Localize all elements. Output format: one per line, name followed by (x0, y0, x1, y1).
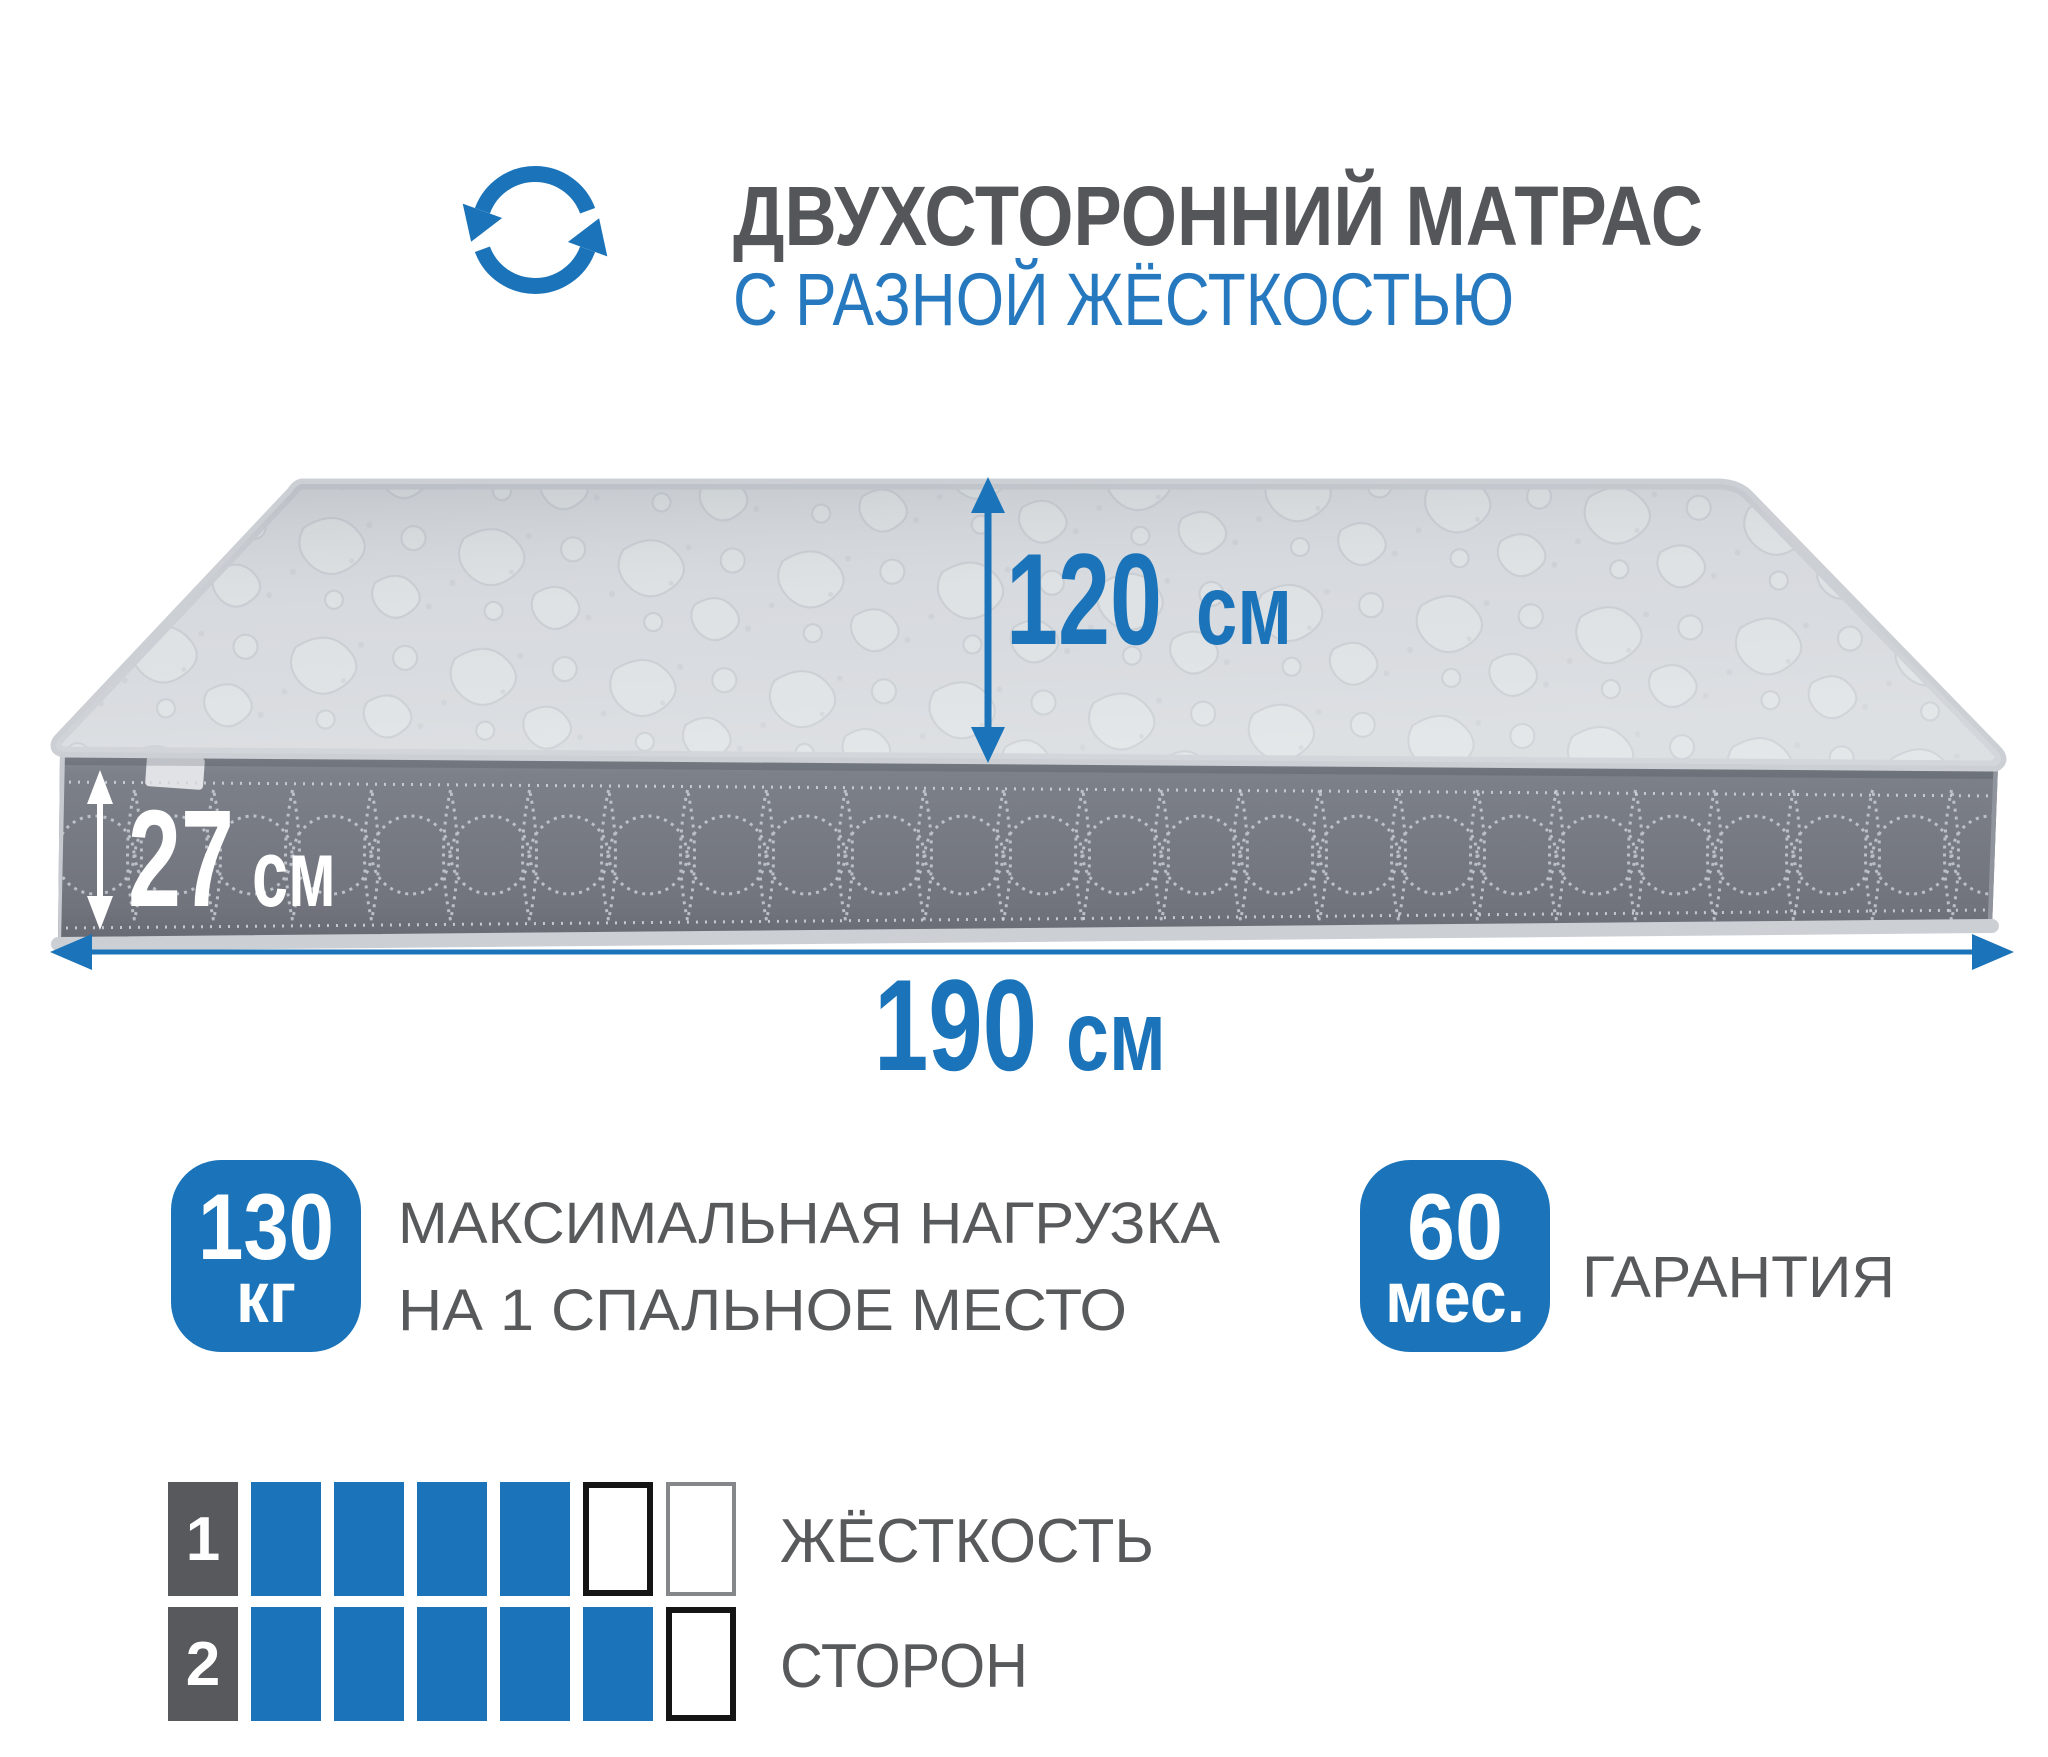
firmness-cell-filled (334, 1607, 404, 1721)
max-load-label-line1: МАКСИМАЛЬНАЯ НАГРУЗКА (398, 1191, 1220, 1256)
warranty-badge: 60 мес. (1360, 1160, 1550, 1352)
firmness-cell-filled (500, 1482, 570, 1596)
warranty-unit: мес. (1385, 1258, 1525, 1338)
firmness-cell-filled (251, 1607, 321, 1721)
depth-value: 120 (1006, 526, 1162, 672)
firmness-cell-filled (251, 1482, 321, 1596)
mattress-side (56, 752, 2038, 944)
length-dimension: 190 см (50, 934, 2014, 1098)
page-title: ДВУХСТОРОННИЙ МАТРАС (733, 169, 1703, 263)
max-load-badge: 130 кг (171, 1160, 361, 1352)
length-value: 190 (874, 952, 1037, 1098)
firmness-row-side-1: 1 (168, 1482, 736, 1596)
firmness-cell-filled (417, 1607, 487, 1721)
firmness-cell-filled (334, 1482, 404, 1596)
firmness-label-line2: СТОРОН (780, 1632, 1028, 1701)
firmness-scale (251, 1607, 736, 1721)
depth-unit: см (1196, 554, 1292, 666)
page-subtitle: С РАЗНОЙ ЖЁСТКОСТЬЮ (733, 258, 1514, 341)
warranty-label: ГАРАНТИЯ (1582, 1245, 1895, 1310)
firmness-cell-filled (417, 1482, 487, 1596)
firmness-cell-empty-weak (666, 1482, 736, 1596)
length-unit: см (1066, 980, 1166, 1092)
firmness-side-number: 2 (168, 1607, 238, 1721)
max-load-label-line2: НА 1 СПАЛЬНОЕ МЕСТО (398, 1278, 1127, 1343)
firmness-label-line1: ЖЁСТКОСТЬ (780, 1507, 1154, 1576)
infographic-canvas: 120 см 27 см 190 см ДВУХСТОРОННИЙ МАТРАС… (0, 0, 2048, 1757)
firmness-cell-empty-strong (583, 1482, 653, 1596)
firmness-row-side-2: 2 (168, 1607, 736, 1721)
rotate-arrows-icon (463, 174, 608, 286)
firmness-cell-filled (583, 1607, 653, 1721)
firmness-scale (251, 1482, 736, 1596)
firmness-side-number: 1 (168, 1482, 238, 1596)
firmness-cell-empty-strong (666, 1607, 736, 1721)
max-load-unit: кг (236, 1258, 296, 1338)
height-unit: см (252, 820, 336, 927)
arrow-right-icon (1972, 934, 2014, 970)
firmness-cell-filled (500, 1607, 570, 1721)
height-value: 27 (128, 782, 234, 936)
